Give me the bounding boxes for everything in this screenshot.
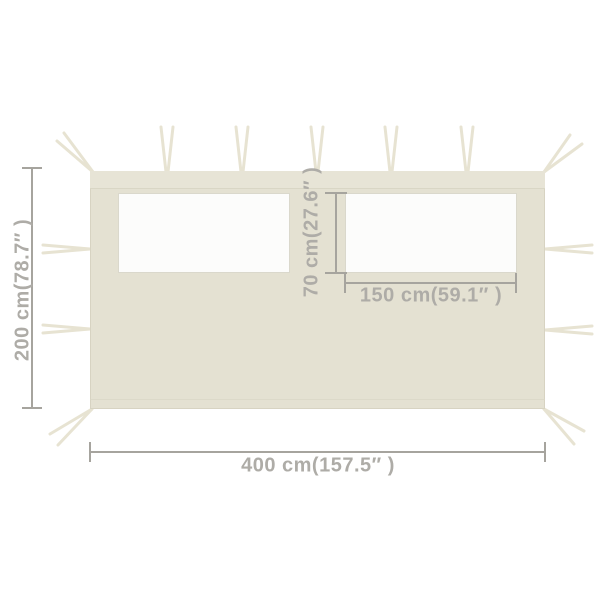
- window-height-dimension-label: 70 cm(27.6″ ): [301, 167, 324, 298]
- product-dimension-diagram: 200 cm(78.7″ ) 400 cm(157.5″ ) 70 cm(27.…: [0, 0, 600, 600]
- window-width-dimension-label: 150 cm(59.1″ ): [360, 285, 502, 308]
- window-height-dimension-line: [325, 193, 347, 273]
- width-dimension-label: 400 cm(157.5″ ): [241, 455, 395, 478]
- dimension-lines-layer: [0, 0, 600, 600]
- height-dimension-label: 200 cm(78.7″ ): [12, 219, 35, 361]
